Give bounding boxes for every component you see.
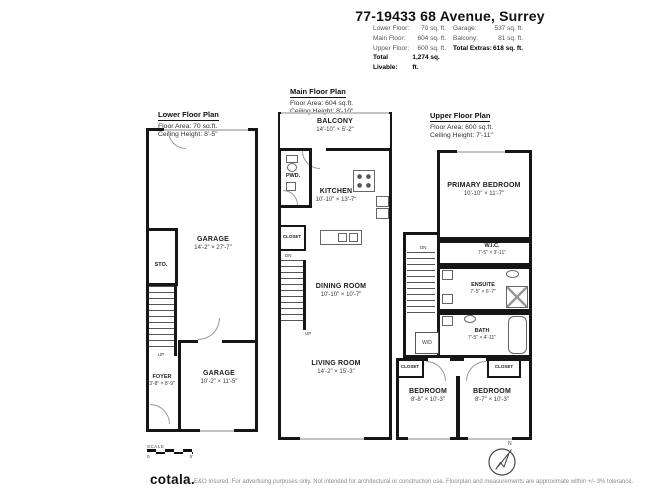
sink-icon <box>442 316 453 326</box>
disclaimer-text: E&O Insured. For advertising purposes on… <box>194 479 633 485</box>
room-label-balcony: BALCONY 14'-10" × 5'-2" <box>316 118 353 134</box>
room-label-powder: PWD. <box>286 173 300 180</box>
door-opening <box>198 340 222 343</box>
stair-wall <box>303 260 306 330</box>
toilet-icon <box>506 270 519 278</box>
north-label: N <box>508 441 512 447</box>
sink-icon <box>349 233 358 242</box>
upper-plan-header: Upper Floor Plan Floor Area: 600 sq.ft. … <box>430 104 493 141</box>
stairs-up-label: UP <box>305 331 311 336</box>
stairs-dn-label: DN <box>285 253 292 258</box>
window <box>300 438 364 440</box>
room-label-dining: DINING ROOM 10'-10" × 10'-7" <box>316 283 366 299</box>
counter-icon <box>376 208 389 219</box>
stairs <box>149 286 174 350</box>
door-opening <box>428 358 450 361</box>
area-row: Main Floor:604 sq. ft. <box>373 34 446 44</box>
sink-icon <box>442 270 453 280</box>
washer-dryer: W/D <box>415 332 439 354</box>
window <box>468 438 512 440</box>
storage-wall <box>146 228 178 286</box>
shower-icon <box>506 286 528 308</box>
sink-icon <box>442 294 453 304</box>
cotala-logo: cotala. <box>150 472 195 487</box>
page-title: 77-19433 68 Avenue, Surrey <box>330 8 570 24</box>
sink-icon <box>338 233 347 242</box>
area-row: Garage:537 sq. ft. <box>453 24 523 34</box>
room-label-bath: BATH 7'-5" × 4'-11" <box>468 328 496 341</box>
stairs-up-label: UP <box>158 352 164 357</box>
total-livable-row: Total Livable:1,274 sq. ft. <box>373 53 446 73</box>
room-label-closet: CLOSET <box>283 234 301 240</box>
stairs <box>281 260 304 326</box>
area-row: Upper Floor:600 sq. ft. <box>373 44 446 54</box>
floorplan-page: 77-19433 68 Avenue, Surrey Lower Floor:7… <box>0 0 667 500</box>
room-label-garage-small: GARAGE 10'-2" × 11'-5" <box>201 370 238 386</box>
area-summary-right: Garage:537 sq. ft. Balcony:81 sq. ft. To… <box>453 24 523 53</box>
window <box>457 151 505 153</box>
room-label-foyer: FOYER 3'-8" × 8'-9" <box>149 374 175 387</box>
area-row: Balcony:81 sq. ft. <box>453 34 523 44</box>
room-label-garage-main: GARAGE 14'-2" × 27'-7" <box>194 236 231 252</box>
area-row: Lower Floor:70 sq. ft. <box>373 24 446 34</box>
room-label-closet-right: CLOSET <box>495 364 513 370</box>
room-label-bedroom-left: BEDROOM 8'-8" × 10'-3" <box>409 388 447 404</box>
stair-wall <box>174 286 177 356</box>
room-label-wic: W.I.C. 7'-5" × 3'-11" <box>478 243 506 256</box>
room-label-closet-left: CLOSET <box>401 364 419 370</box>
room-label-storage: STO. <box>155 262 168 269</box>
north-compass-icon: N <box>483 441 521 479</box>
room-label-living: LIVING ROOM 14'-2" × 15'-3" <box>311 360 360 376</box>
room-label-bedroom-right: BEDROOM 8'-7" × 10'-3" <box>473 388 511 404</box>
area-summary-left: Lower Floor:70 sq. ft. Main Floor:604 sq… <box>373 24 446 73</box>
stairs-dn-label: DN <box>420 245 427 250</box>
toilet-icon <box>464 315 476 323</box>
window <box>408 438 450 440</box>
garage-door-line <box>200 430 234 432</box>
toilet-icon <box>287 163 297 172</box>
room-label-ensuite: ENSUITE 7'-5" × 6'-7" <box>470 282 496 295</box>
total-extras-row: Total Extras:618 sq. ft. <box>453 44 523 54</box>
room-label-primary: PRIMARY BEDROOM 10'-10" × 11'-7" <box>447 182 520 198</box>
scale-bar: SCALE 0 5' <box>147 444 193 459</box>
balcony-railing <box>281 112 389 114</box>
bedroom-divider-wall <box>456 376 460 440</box>
counter-icon <box>376 196 389 207</box>
stairs <box>407 252 435 316</box>
room-label-kitchen: KITCHEN 10'-10" × 13'-7" <box>316 188 357 204</box>
toilet-icon <box>286 155 298 163</box>
bathtub-icon <box>508 316 527 354</box>
sink-icon <box>286 182 296 191</box>
